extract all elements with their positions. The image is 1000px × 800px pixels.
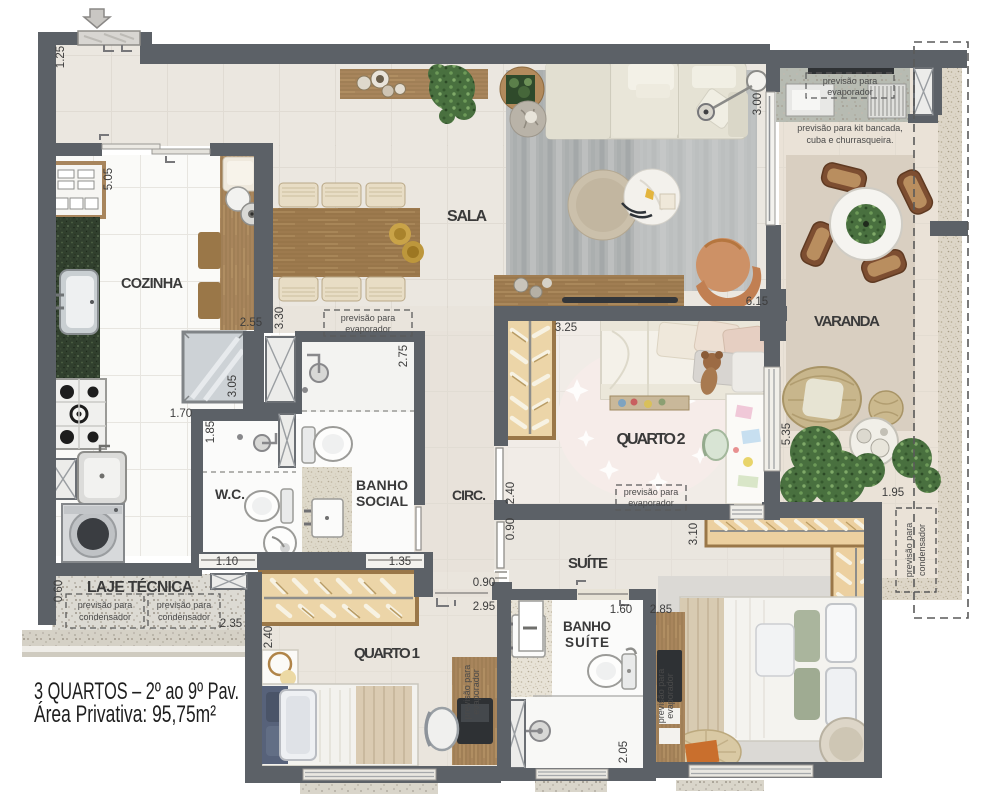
svg-text:Área Privativa: 95,75m²: Área Privativa: 95,75m² (34, 701, 216, 728)
svg-text:2.55: 2.55 (240, 317, 262, 329)
svg-text:2.40: 2.40 (505, 482, 517, 504)
svg-text:1.85: 1.85 (205, 421, 217, 443)
svg-text:SUÍTE: SUÍTE (565, 635, 609, 650)
svg-text:3.10: 3.10 (688, 523, 700, 545)
svg-text:previsão para: previsão para (624, 487, 679, 497)
svg-text:1.10: 1.10 (216, 556, 238, 568)
svg-text:previsão para: previsão para (341, 313, 396, 323)
svg-text:previsão para kit bancada,: previsão para kit bancada, (797, 123, 903, 133)
svg-text:2.85: 2.85 (650, 604, 672, 616)
svg-text:2.40: 2.40 (263, 626, 275, 648)
svg-text:QUARTO 2: QUARTO 2 (617, 431, 686, 448)
svg-text:1.35: 1.35 (389, 556, 411, 568)
svg-text:COZINHA: COZINHA (121, 276, 184, 292)
svg-text:BANHO: BANHO (563, 619, 611, 634)
svg-text:LAJE TÉCNICA: LAJE TÉCNICA (87, 579, 193, 596)
svg-text:condensador: condensador (158, 612, 210, 622)
svg-text:3.25: 3.25 (555, 322, 577, 334)
svg-text:evaporador: evaporador (665, 673, 675, 719)
svg-text:0.90: 0.90 (473, 577, 495, 589)
svg-text:evaporador: evaporador (628, 498, 674, 508)
svg-text:W.C.: W.C. (215, 486, 245, 502)
svg-text:2.75: 2.75 (398, 345, 410, 367)
svg-text:cuba e churrasqueira.: cuba e churrasqueira. (806, 135, 893, 145)
svg-text:1.95: 1.95 (882, 487, 904, 499)
svg-text:evaporador: evaporador (471, 669, 481, 715)
svg-text:5.35: 5.35 (781, 423, 793, 445)
svg-text:0.90: 0.90 (505, 518, 517, 540)
svg-text:condensador: condensador (79, 612, 131, 622)
svg-text:0.60: 0.60 (53, 580, 65, 602)
svg-text:5.05: 5.05 (103, 168, 115, 190)
svg-text:3.30: 3.30 (274, 307, 286, 329)
svg-text:previsão para: previsão para (823, 76, 878, 86)
svg-text:previsão para: previsão para (904, 523, 914, 578)
svg-text:SALA: SALA (447, 208, 487, 225)
svg-text:CIRC.: CIRC. (452, 487, 486, 503)
svg-text:3.00: 3.00 (752, 93, 764, 115)
svg-text:BANHO: BANHO (356, 477, 408, 493)
svg-text:SUÍTE: SUÍTE (568, 555, 608, 572)
svg-text:previsão para: previsão para (157, 600, 212, 610)
svg-text:SOCIAL: SOCIAL (356, 493, 408, 509)
svg-text:2.95: 2.95 (473, 601, 495, 613)
svg-text:3.05: 3.05 (227, 375, 239, 397)
svg-text:1.60: 1.60 (610, 604, 632, 616)
svg-text:1.25: 1.25 (55, 46, 67, 68)
svg-text:VARANDA: VARANDA (814, 313, 880, 330)
svg-text:2.05: 2.05 (618, 741, 630, 763)
svg-text:6.15: 6.15 (746, 296, 768, 308)
svg-text:condensador: condensador (917, 524, 927, 576)
svg-text:2.35: 2.35 (220, 618, 242, 630)
svg-text:1.70: 1.70 (170, 408, 192, 420)
svg-text:evaporador: evaporador (827, 87, 873, 97)
svg-text:QUARTO 1: QUARTO 1 (354, 645, 420, 662)
svg-text:evaporador: evaporador (345, 324, 391, 334)
svg-text:previsão para: previsão para (78, 600, 133, 610)
